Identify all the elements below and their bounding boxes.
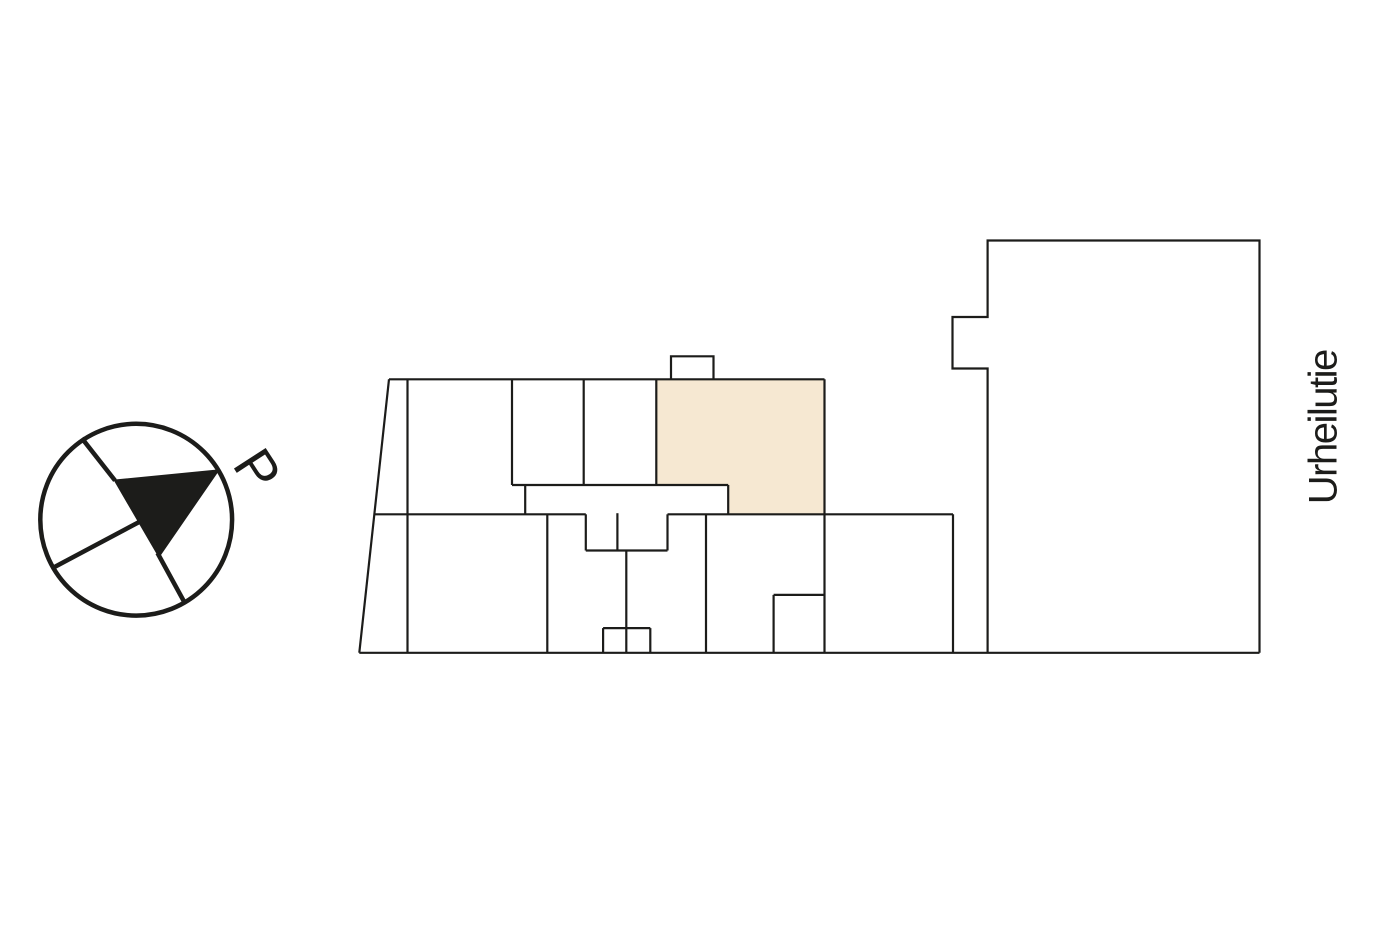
- svg-text:Urheilutie: Urheilutie: [1302, 350, 1346, 504]
- svg-text:P: P: [221, 438, 293, 503]
